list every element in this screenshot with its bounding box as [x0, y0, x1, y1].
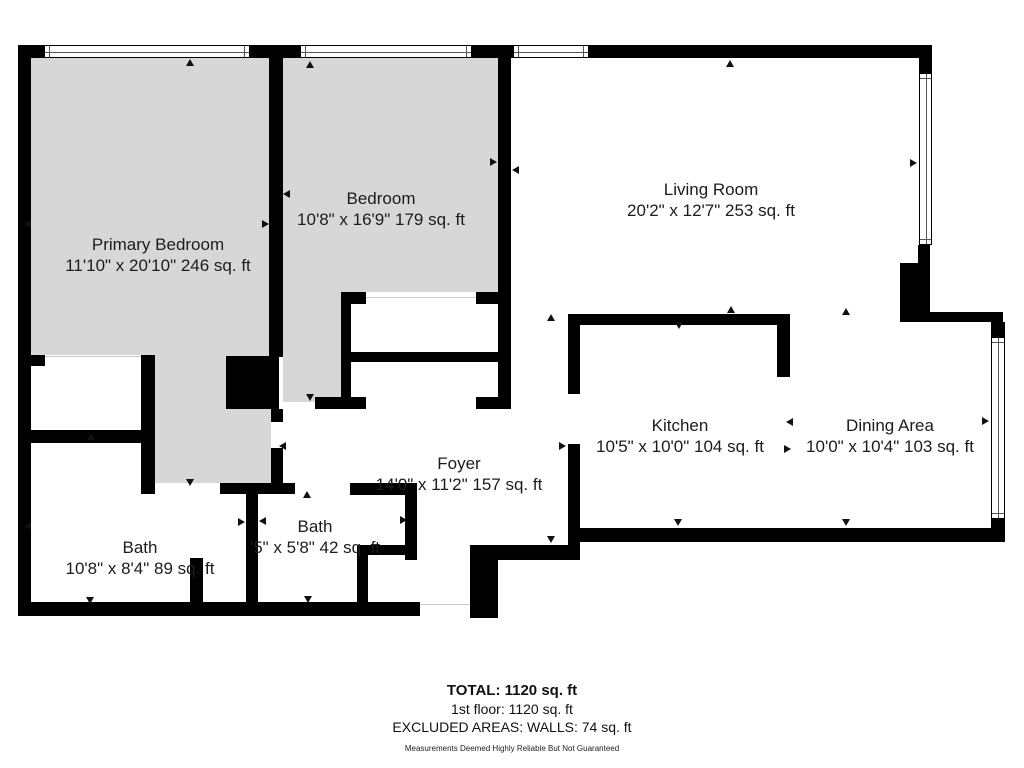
window	[300, 45, 472, 58]
dimension-arrow-down	[547, 536, 555, 543]
dimension-arrow-left	[279, 442, 286, 450]
room-name: Bath	[66, 537, 215, 558]
floor-plan-drawing: Primary Bedroom11'10" x 20'10" 246 sq. f…	[0, 0, 1024, 768]
window-mid	[514, 52, 588, 53]
dimension-arrow-left	[283, 190, 290, 198]
wall	[900, 263, 930, 322]
wall	[919, 45, 932, 74]
room-dimensions: 10'5" x 10'0" 104 sq. ft	[596, 436, 764, 457]
window-cap	[920, 78, 931, 79]
window-mid	[926, 74, 927, 244]
wall	[31, 355, 45, 366]
dimension-arrow-down	[304, 596, 312, 603]
room-label-foyer: Foyer14'0" x 11'2" 157 sq. ft	[376, 453, 543, 495]
room-label-living-room: Living Room20'2" x 12'7" 253 sq. ft	[627, 179, 795, 221]
window	[919, 73, 932, 245]
dimension-arrow-up	[842, 308, 850, 315]
dimension-arrow-up	[727, 306, 735, 313]
dimension-arrow-up	[306, 61, 314, 68]
room-name: Foyer	[376, 453, 543, 474]
wall	[918, 245, 930, 263]
room-name: Kitchen	[596, 415, 764, 436]
dimension-arrow-down	[306, 394, 314, 401]
disclaimer-text: Measurements Deemed Highly Reliable But …	[0, 744, 1024, 754]
window-cap	[992, 513, 1004, 514]
room-dimensions: 20'2" x 12'7" 253 sq. ft	[627, 200, 795, 221]
wall	[568, 314, 580, 394]
dimension-arrow-down	[186, 479, 194, 486]
room-name: Living Room	[627, 179, 795, 200]
room-dimensions: 14'0" x 11'2" 157 sq. ft	[376, 474, 543, 495]
wall	[341, 292, 351, 409]
window-mid	[45, 52, 249, 53]
window-cap	[305, 46, 306, 57]
window	[44, 45, 250, 58]
room-dimensions: 10'0" x 10'4" 103 sq. ft	[806, 436, 974, 457]
dimension-arrow-up	[547, 314, 555, 321]
room-label-bath-2: Bath'5" x 5'8" 42 sq. ft	[250, 516, 380, 558]
wall	[271, 409, 283, 422]
dimension-arrow-left	[24, 220, 31, 228]
floor-plan-canvas: Primary Bedroom11'10" x 20'10" 246 sq. f…	[0, 0, 1024, 768]
dimension-arrow-right	[490, 158, 497, 166]
window-cap	[583, 46, 584, 57]
window-cap	[992, 342, 1004, 343]
wall	[568, 444, 580, 540]
wall	[470, 545, 498, 618]
dimension-arrow-left	[259, 517, 266, 525]
room-dimensions: 11'10" x 20'10" 246 sq. ft	[65, 255, 251, 276]
dimension-arrow-down	[675, 322, 683, 329]
dimension-arrow-right	[982, 417, 989, 425]
total-area-text: TOTAL: 1120 sq. ft	[0, 681, 1024, 700]
window	[991, 337, 1005, 519]
room-dimensions: '5" x 5'8" 42 sq. ft	[250, 537, 380, 558]
room-floor	[283, 58, 498, 292]
window	[513, 45, 589, 58]
wall	[18, 430, 153, 443]
room-label-bedroom: Bedroom10'8" x 16'9" 179 sq. ft	[297, 188, 465, 230]
room-label-kitchen: Kitchen10'5" x 10'0" 104 sq. ft	[596, 415, 764, 457]
room-label-primary-bedroom: Primary Bedroom11'10" x 20'10" 246 sq. f…	[65, 234, 251, 276]
room-label-dining-area: Dining Area10'0" x 10'4" 103 sq. ft	[806, 415, 974, 457]
wall	[589, 45, 932, 58]
first-floor-area-text: 1st floor: 1120 sq. ft	[0, 700, 1024, 718]
dimension-arrow-right	[784, 445, 791, 453]
room-floor	[31, 58, 269, 355]
dimension-arrow-up	[726, 60, 734, 67]
excluded-areas-text: EXCLUDED AREAS: WALLS: 74 sq. ft	[0, 718, 1024, 736]
dimension-arrow-down	[842, 519, 850, 526]
window-cap	[466, 46, 467, 57]
window-cap	[49, 46, 50, 57]
window-mid	[998, 338, 999, 518]
dimension-arrow-left	[24, 522, 31, 530]
door-opening-line	[420, 604, 470, 605]
room-floor	[283, 292, 341, 402]
floor-plan-summary: TOTAL: 1120 sq. ft 1st floor: 1120 sq. f…	[0, 681, 1024, 754]
dimension-arrow-up	[87, 433, 95, 440]
dimension-arrow-down	[674, 519, 682, 526]
dimension-arrow-right	[910, 159, 917, 167]
room-name: Primary Bedroom	[65, 234, 251, 255]
room-dimensions: 10'8" x 8'4" 89 sq. ft	[66, 558, 215, 579]
window-cap	[920, 239, 931, 240]
wall	[577, 528, 1003, 542]
dimension-arrow-right	[262, 220, 269, 228]
window-cap	[518, 46, 519, 57]
room-name: Bedroom	[297, 188, 465, 209]
dimension-arrow-right	[400, 516, 407, 524]
wall	[930, 312, 1003, 322]
wall	[18, 45, 31, 616]
dimension-arrow-down	[86, 597, 94, 604]
wall	[315, 397, 366, 409]
dimension-arrow-left	[512, 166, 519, 174]
wall	[991, 519, 1005, 542]
dimension-arrow-right	[559, 442, 566, 450]
window-mid	[301, 52, 471, 53]
room-name: Dining Area	[806, 415, 974, 436]
room-label-bath-primary: Bath10'8" x 8'4" 89 sq. ft	[66, 537, 215, 579]
wall	[141, 355, 155, 494]
wall	[777, 325, 790, 377]
room-dimensions: 10'8" x 16'9" 179 sq. ft	[297, 209, 465, 230]
wall	[269, 57, 283, 357]
dimension-arrow-left	[786, 418, 793, 426]
wall	[991, 322, 1005, 338]
room-name: Bath	[250, 516, 380, 537]
window-cap	[244, 46, 245, 57]
dimension-arrow-right	[238, 518, 245, 526]
dimension-arrow-up	[303, 491, 311, 498]
wall	[498, 57, 511, 409]
wall	[341, 352, 511, 362]
wall	[226, 356, 279, 409]
dimension-arrow-up	[186, 59, 194, 66]
door-opening-line	[366, 297, 476, 298]
door-opening-line	[45, 356, 142, 357]
